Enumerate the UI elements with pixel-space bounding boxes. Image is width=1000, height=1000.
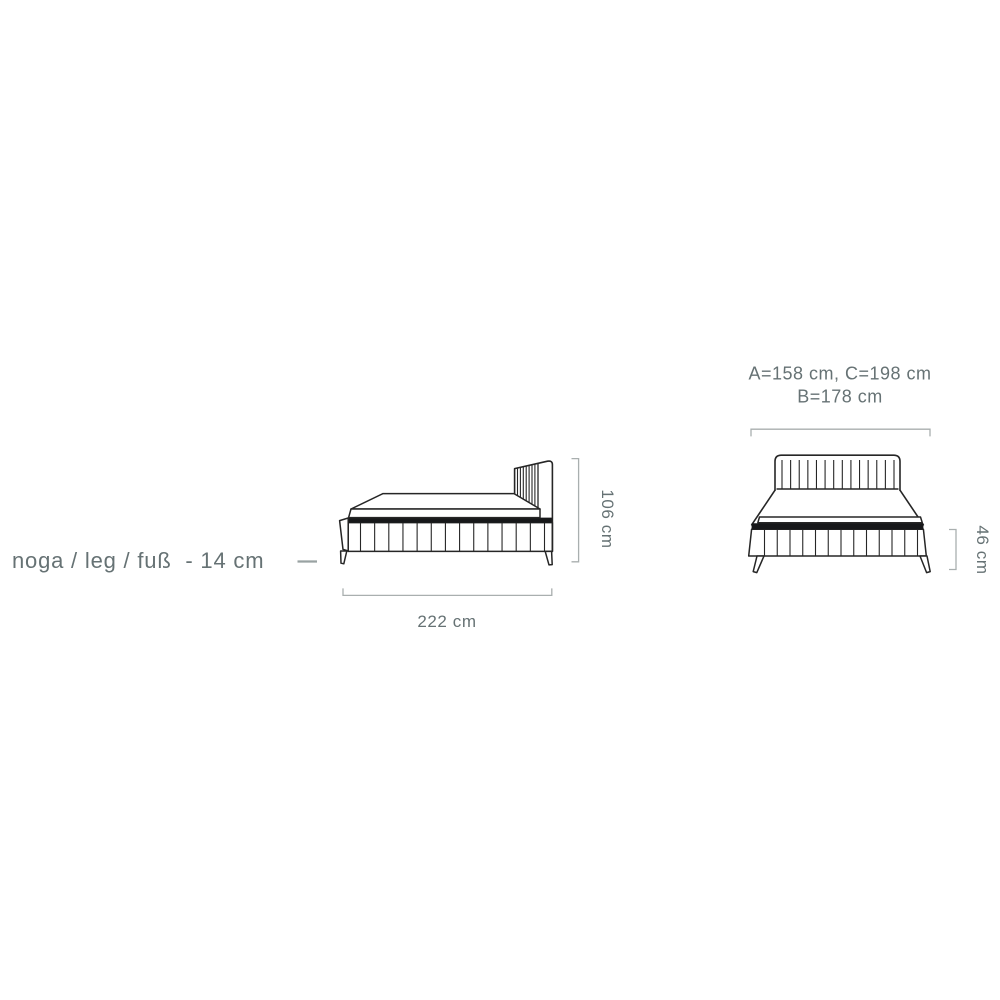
front-right-leg <box>920 556 930 573</box>
side-rear-leg <box>545 551 552 565</box>
side-mattress-front <box>349 509 540 518</box>
side-width-label: 222 cm <box>417 612 476 632</box>
front-frame-band <box>752 523 924 529</box>
side-mattress-top <box>351 494 540 509</box>
side-frame-base <box>348 523 552 552</box>
front-width-label-line1: A=158 cm, C=198 cm <box>748 364 931 385</box>
bed-front-view <box>749 455 931 572</box>
front-height-label: 46 cm <box>972 525 992 574</box>
width-dim-bracket-front <box>751 429 930 436</box>
leg-note-label: noga / leg / fuß - 14 cm <box>12 548 264 574</box>
side-frame-band <box>348 518 552 523</box>
front-left-leg <box>753 556 764 573</box>
height-dim-bracket-side <box>572 459 579 562</box>
side-height-label: 106 cm <box>597 489 617 548</box>
width-dim-bracket-side <box>343 588 552 595</box>
front-mattress-front <box>758 517 923 523</box>
diagram-canvas: noga / leg / fuß - 14 cm 222 cm 106 cm A… <box>0 0 1000 1000</box>
height-dim-bracket-front <box>949 530 956 570</box>
side-foot-rail <box>340 518 349 551</box>
front-frame-base <box>749 529 927 556</box>
side-front-leg <box>341 551 347 564</box>
front-headboard-outline <box>775 455 900 490</box>
front-width-label-line2: B=178 cm <box>797 387 883 408</box>
bed-side-view <box>340 461 553 565</box>
front-headboard-channels <box>782 460 894 489</box>
technical-drawing <box>0 0 1000 1000</box>
